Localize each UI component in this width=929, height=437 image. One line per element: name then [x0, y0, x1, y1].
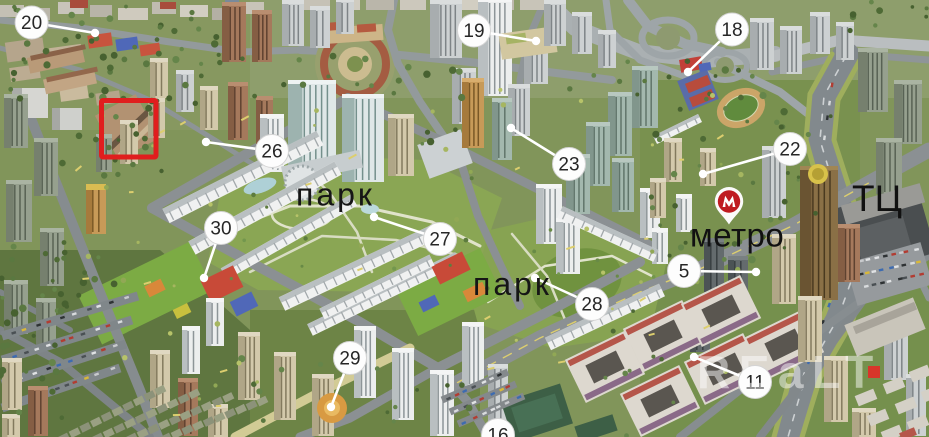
svg-text:5: 5	[679, 262, 690, 283]
svg-text:28: 28	[581, 295, 602, 316]
svg-text:20: 20	[21, 13, 42, 34]
svg-text:22: 22	[779, 140, 800, 161]
svg-text:парк: парк	[473, 266, 552, 302]
svg-text:ТЦ: ТЦ	[852, 178, 902, 219]
svg-text:26: 26	[261, 142, 282, 163]
svg-text:REaLT: REaLT	[697, 346, 882, 398]
svg-text:метро: метро	[690, 217, 784, 254]
svg-text:19: 19	[463, 21, 484, 42]
svg-text:29: 29	[339, 349, 360, 370]
svg-text:27: 27	[429, 230, 450, 251]
svg-text:парк: парк	[296, 177, 375, 213]
svg-text:30: 30	[210, 219, 231, 240]
svg-text:23: 23	[558, 155, 579, 176]
svg-text:18: 18	[721, 20, 742, 41]
svg-text:16: 16	[487, 426, 508, 437]
